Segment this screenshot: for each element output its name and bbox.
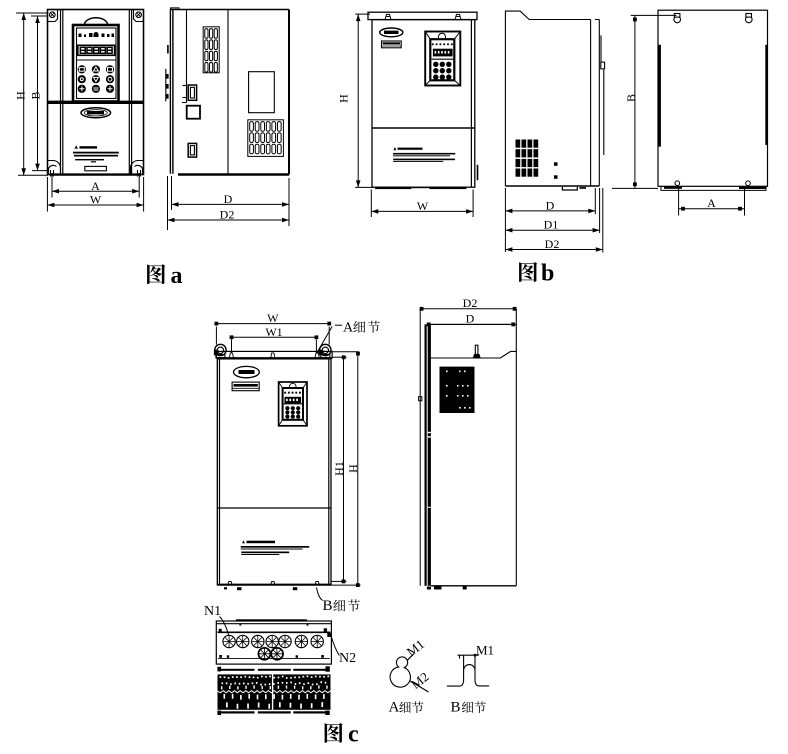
svg-text:N2: N2 — [339, 651, 356, 666]
svg-text:M1: M1 — [476, 643, 494, 658]
svg-text:D1: D1 — [544, 218, 559, 232]
svg-text:W: W — [267, 311, 279, 325]
svg-text:A: A — [707, 196, 716, 210]
svg-text:a: a — [171, 263, 183, 289]
svg-text:B: B — [28, 91, 42, 99]
svg-text:H: H — [14, 91, 28, 100]
svg-text:W: W — [90, 193, 102, 207]
svg-text:H: H — [337, 94, 351, 103]
svg-text:W1: W1 — [265, 325, 282, 339]
svg-text:N1: N1 — [204, 604, 221, 619]
svg-text:A: A — [91, 179, 100, 193]
svg-text:A: A — [389, 700, 400, 716]
svg-text:D: D — [224, 192, 233, 206]
svg-text:B: B — [323, 598, 333, 614]
svg-text:B: B — [451, 700, 461, 716]
svg-text:H1: H1 — [332, 461, 346, 476]
svg-text:c: c — [348, 722, 359, 748]
svg-text:W: W — [417, 199, 429, 213]
svg-text:A: A — [343, 321, 354, 336]
svg-text:D2: D2 — [220, 208, 235, 222]
svg-text:B: B — [624, 94, 638, 102]
svg-text:b: b — [541, 261, 554, 287]
svg-text:H: H — [346, 464, 360, 473]
svg-text:D2: D2 — [545, 237, 560, 251]
svg-text:D: D — [546, 198, 555, 212]
svg-text:D2: D2 — [463, 296, 478, 310]
svg-text:D: D — [466, 311, 475, 325]
